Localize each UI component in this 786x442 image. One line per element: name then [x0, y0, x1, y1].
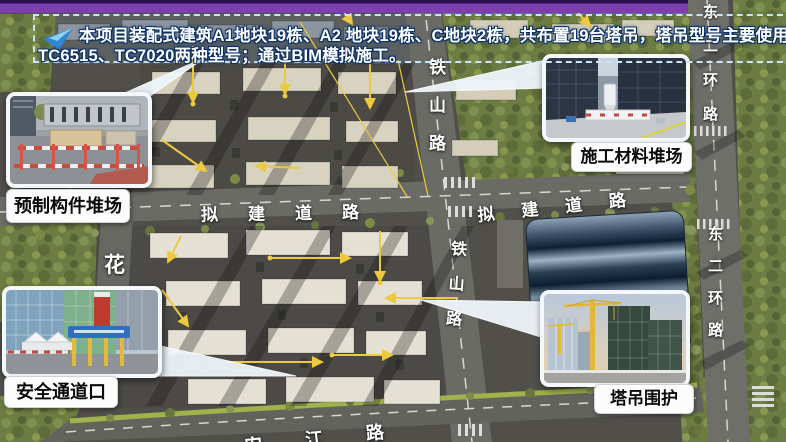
safety-passage-photo-art: [6, 290, 158, 374]
slide: 铁山路 铁山路 东二环路 东二环路 拟建道路 拟建道路 花 安江路: [0, 0, 786, 442]
callout-label-crane: 塔吊围护: [594, 384, 694, 414]
tower-crane-photo: [540, 290, 690, 387]
banner-text-line2: TC6515、TC7020两种型号；通过BIM模拟施工。: [38, 42, 406, 66]
material-yard-photo-art: [546, 58, 686, 138]
material-yard-photo: [542, 54, 690, 142]
precast-yard-photo: [6, 92, 152, 188]
leader-material: [405, 60, 546, 92]
precast-yard-photo-art: [10, 96, 148, 184]
project-summary-banner: 本项目装配式建筑A1地块19栋、A2 地块19栋、C地块2栋，共布置19台塔吊，…: [33, 14, 786, 63]
safety-passage-photo: [2, 286, 162, 378]
callout-label-safety: 安全通道口: [4, 376, 118, 408]
callout-label-material: 施工材料堆场: [571, 142, 692, 172]
tower-crane-photo-art: [544, 294, 686, 383]
leader-safety: [156, 345, 296, 376]
leader-crane: [421, 300, 544, 338]
slide-top-bar: [0, 0, 688, 13]
callout-label-precast: 预制构件堆场: [6, 189, 130, 223]
